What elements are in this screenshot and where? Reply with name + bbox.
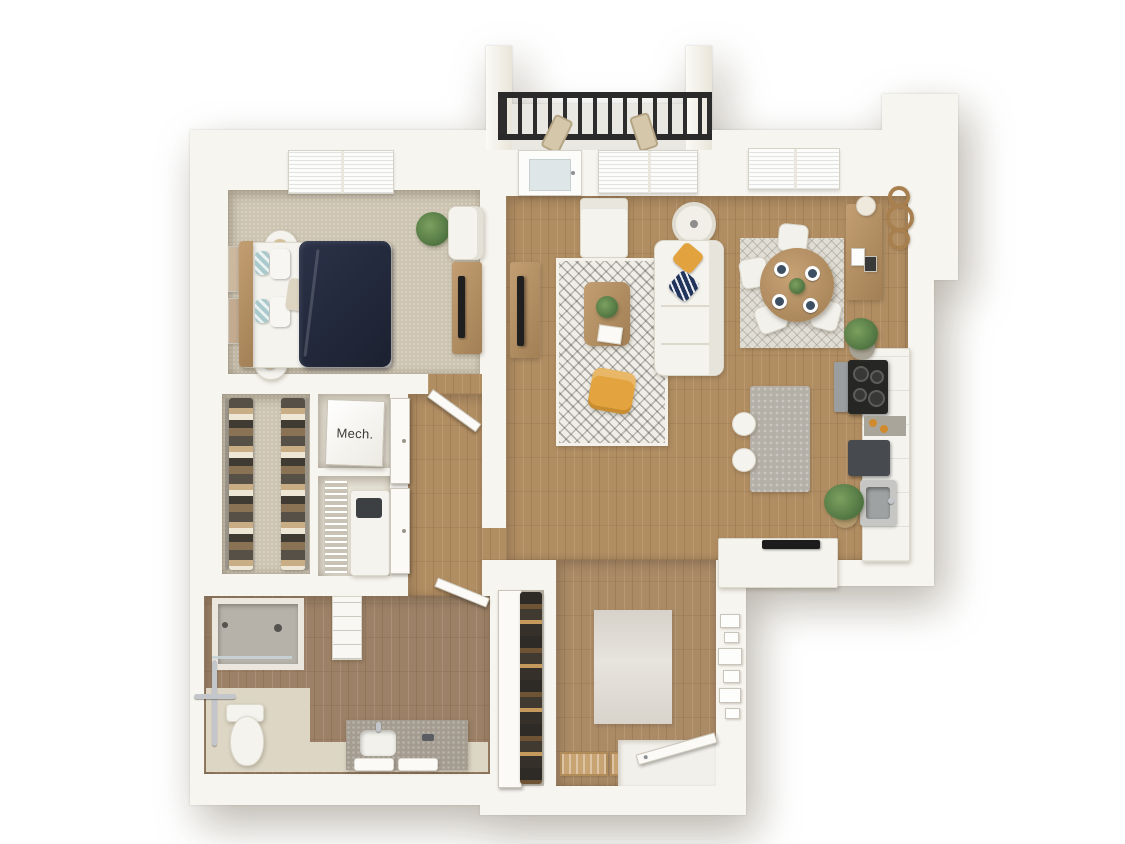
entry-rug [594,610,672,724]
shower-drain [274,624,282,632]
place-setting-1 [774,262,789,277]
towel-2 [398,758,438,771]
sideboard-frame-white [851,248,865,266]
gallery-frame-2 [724,632,739,643]
shower-head [222,622,228,628]
balcony-door-glass [529,159,571,191]
shower [212,598,304,670]
bar-stool-1 [732,412,756,436]
coat-closet-slider [498,590,522,788]
door-knob [402,529,406,533]
kitchen-sink [860,480,896,526]
mech-label: Mech. [336,425,373,441]
vanity-sink [360,730,396,756]
pillow-teal-1 [255,251,269,275]
gallery-frame-3 [718,648,742,665]
door-knob [402,439,406,443]
orange-fruit-1 [869,419,877,427]
grab-bar-horizontal [194,694,236,699]
doormat-1 [560,752,608,776]
bedroom-armchair [448,206,484,260]
coat-closet-clothes [520,592,542,784]
gallery-frame-5 [719,688,741,703]
vanity-faucet [376,722,381,732]
living-window-center [598,150,698,194]
closet-rod-right [305,398,309,570]
bar-stool-2 [732,448,756,472]
bed-headboard [239,241,253,367]
sofa-back [709,241,723,375]
bedroom-tv [458,276,465,338]
range-cooktop [848,360,888,414]
orange-fruit-2 [880,425,888,433]
linen-shelf [332,596,362,660]
window-mullion [648,151,651,193]
coffee-table-book [597,324,623,344]
range-stainless-edge [834,362,848,412]
sideboard-vase [856,196,876,216]
sink-faucet [888,498,894,504]
burner-2 [870,370,884,384]
window-mullion [794,149,797,189]
tv-living [517,276,524,346]
walkin-clothes-right [281,398,305,570]
hall-closet-door-2 [390,488,410,574]
grab-bar-vertical [212,660,217,746]
bedroom-dresser [452,262,482,354]
towel-1 [354,758,394,771]
entry-door-handle [643,755,648,760]
vanity-accessory [422,734,434,741]
burner-1 [853,366,869,382]
burner-4 [868,390,885,407]
kitchen-island [750,386,810,492]
laundry-wire-shelf [324,480,348,574]
coffee-table-plant [596,296,618,318]
balcony-railing [498,92,712,140]
place-setting-3 [772,294,787,309]
counter-appliance-dark [848,440,890,476]
balcony-door-handle [571,171,575,175]
hallway-living-opening [482,528,506,560]
bed [240,242,392,368]
yellow-accent-chair [587,366,638,415]
living-window-right [748,148,840,190]
dining-table [760,248,834,322]
gallery-frame-6 [725,708,740,719]
sofa-cushion-line-1 [661,305,709,307]
sofa-cushion-line-2 [661,343,709,345]
floor-lamp-finial [690,220,698,228]
bed-duvet [299,241,391,367]
media-cabinet [580,198,628,258]
pillow-white-1 [270,249,290,279]
burner-3 [853,388,867,402]
toilet-bowl [230,716,264,766]
floor-plan-canvas: Mech. [0,0,1125,844]
hall-closet-door-1 [390,398,410,484]
water-heater-mech: Mech. [325,399,385,467]
washer-control-panel [356,498,382,518]
walkin-clothes-left [229,398,253,570]
wall-ring-decor-3 [888,228,910,250]
plant-floor-kitchen [824,484,864,520]
peninsula-dark-appliance [762,540,820,549]
table-centerpiece [789,278,805,294]
pillow-teal-2 [255,299,269,323]
sideboard-frame-dark [864,256,877,272]
plant-counter [844,318,878,350]
window-mullion [341,151,344,193]
sink-basin [866,487,890,519]
place-setting-2 [805,266,820,281]
shower-glass-edge [212,656,292,659]
tv-console [510,262,540,358]
gallery-frame-1 [720,614,740,628]
balcony-door [518,150,582,196]
place-setting-4 [803,298,818,313]
gallery-frame-4 [723,670,740,683]
bedroom-plant [416,212,450,246]
bedroom-window [288,150,394,194]
